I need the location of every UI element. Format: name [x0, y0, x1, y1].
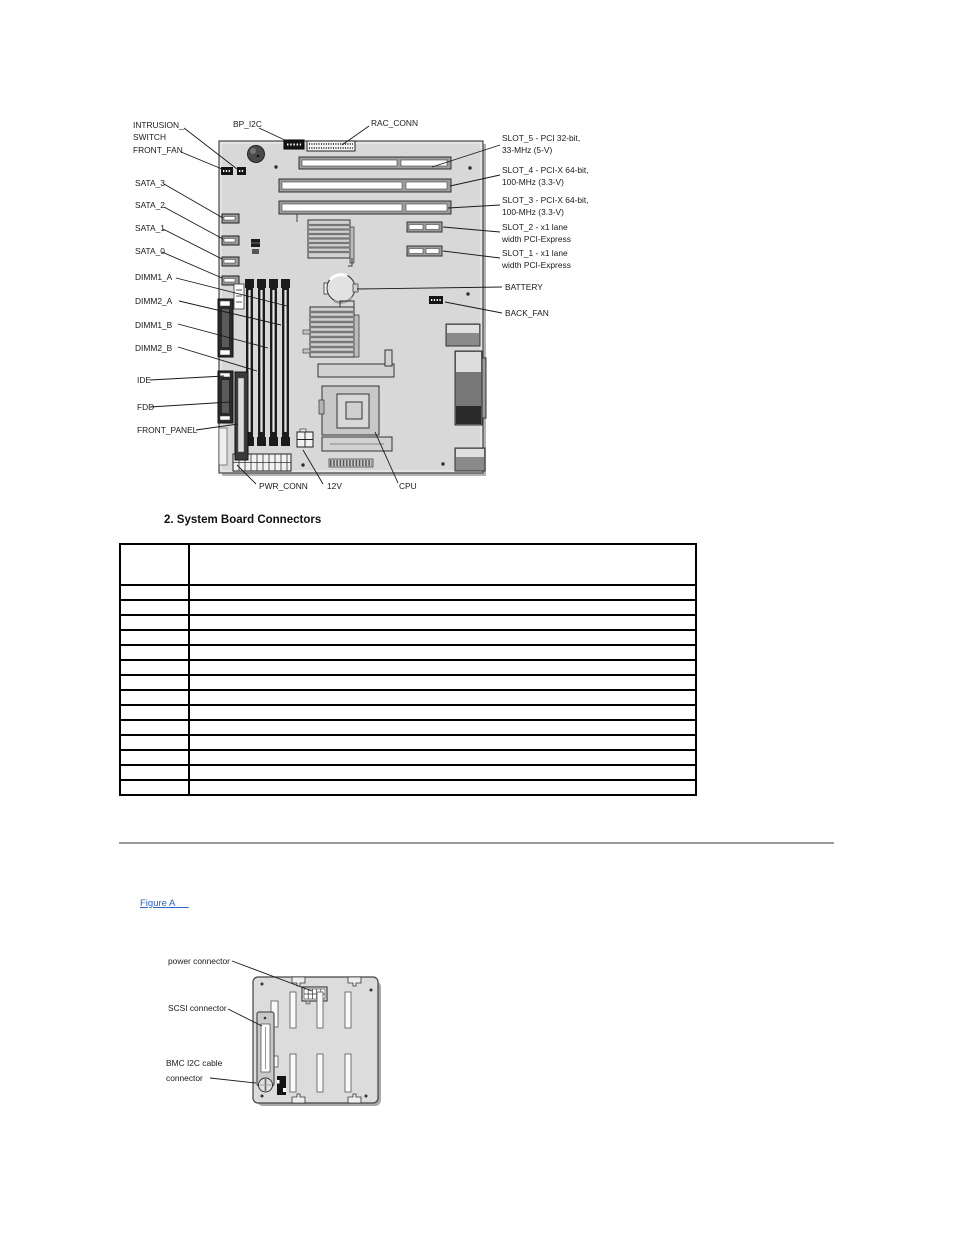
dimm-slot [257, 279, 266, 446]
label-front-panel: FRONT_PANEL [137, 425, 198, 435]
table-cell [189, 585, 696, 600]
table-row [120, 600, 696, 615]
table-row [120, 690, 696, 705]
label-pwr-conn: PWR_CONN [259, 481, 308, 491]
label-rac-conn: RAC_CONN [371, 118, 418, 128]
table-cell [189, 615, 696, 630]
label-bmc-i2c-1: BMC I2C cable [166, 1058, 223, 1068]
table-header-cell-description [189, 544, 696, 585]
label-cpu: CPU [399, 481, 417, 491]
label-battery: BATTERY [505, 282, 543, 292]
aux-connector [234, 284, 244, 309]
table-cell [189, 675, 696, 690]
bottom-header-strip [329, 459, 373, 467]
label-intrusion-switch-1: INTRUSION_ [133, 120, 184, 130]
slot-3-pcix [279, 201, 451, 214]
dimm-slot [281, 279, 290, 446]
table-cell [120, 600, 189, 615]
backplane-labels: power connector SCSI connector BMC I2C c… [166, 956, 230, 1083]
label-dimm1-b: DIMM1_B [135, 320, 173, 330]
label-slot-3-2: 100-MHz (3.3-V) [502, 207, 564, 217]
ide-connector [218, 299, 233, 357]
label-sata-1: SATA_1 [135, 223, 165, 233]
table-cell [189, 630, 696, 645]
table-row [120, 615, 696, 630]
manual-page: INTRUSION_ SWITCH FRONT_FAN SATA_3 SATA_… [0, 0, 954, 1235]
label-front-fan: FRONT_FAN [133, 145, 183, 155]
label-power-connector: power connector [168, 956, 230, 966]
label-slot-4-1: SLOT_4 - PCI-X 64-bit, [502, 165, 589, 175]
table-cell [189, 600, 696, 615]
table-row [120, 630, 696, 645]
table-cell [189, 705, 696, 720]
front-fan-connector [221, 167, 233, 175]
table-cell [120, 645, 189, 660]
table-cell [189, 660, 696, 675]
table-row [120, 765, 696, 780]
sata-2-connector [222, 236, 239, 245]
table-row [120, 675, 696, 690]
table-row [120, 645, 696, 660]
label-slot-2-2: width PCI-Express [501, 234, 571, 244]
figure-a-link[interactable]: Figure A [140, 898, 189, 909]
table-cell [189, 720, 696, 735]
table-cell [189, 780, 696, 795]
small-chip [251, 239, 260, 254]
label-sata-2: SATA_2 [135, 200, 165, 210]
12v-connector [297, 429, 313, 447]
system-board-diagram: INTRUSION_ SWITCH FRONT_FAN SATA_3 SATA_… [118, 108, 648, 500]
table-row [120, 585, 696, 600]
intrusion-switch-connector [237, 167, 246, 175]
label-slot-3-1: SLOT_3 - PCI-X 64-bit, [502, 195, 589, 205]
table-header-row [120, 544, 696, 585]
table-cell [189, 765, 696, 780]
rac-conn-connector [307, 141, 355, 151]
table-row [120, 720, 696, 735]
section-divider [119, 842, 834, 844]
label-slot-2-1: SLOT_2 - x1 lane [502, 222, 568, 232]
dimm-slot [269, 279, 278, 446]
label-dimm2-b: DIMM2_B [135, 343, 173, 353]
table-row [120, 750, 696, 765]
table-cell [120, 630, 189, 645]
system-board-connectors-table [119, 543, 697, 796]
slot-5-pci [299, 157, 451, 169]
back-fan-connector [429, 296, 443, 304]
slot-4-pcix [279, 179, 451, 192]
label-dimm2-a: DIMM2_A [135, 296, 173, 306]
backplane-diagram: power connector SCSI connector BMC I2C c… [148, 946, 448, 1118]
backplane-scsi-connector [257, 1012, 274, 1086]
fdd-connector [218, 371, 233, 423]
table-cell [120, 675, 189, 690]
table-row [120, 735, 696, 750]
label-sata-0: SATA_0 [135, 246, 165, 256]
label-slot-1-2: width PCI-Express [501, 260, 571, 270]
table-cell [120, 705, 189, 720]
connectors-table-body [120, 585, 696, 795]
label-back-fan: BACK_FAN [505, 308, 549, 318]
table-cell [120, 765, 189, 780]
label-scsi-connector: SCSI connector [168, 1003, 227, 1013]
slot-1-pcie [407, 246, 442, 256]
table-cell [120, 750, 189, 765]
label-dimm1-a: DIMM1_A [135, 272, 173, 282]
label-intrusion-switch-2: SWITCH [133, 132, 166, 142]
table-cell [120, 720, 189, 735]
table-cell [189, 750, 696, 765]
chipset-heatsink-lower [303, 301, 359, 357]
label-12v: 12V [327, 481, 342, 491]
table-header-cell-connector [120, 544, 189, 585]
table-cell [120, 585, 189, 600]
figure1-caption: 2. System Board Connectors [164, 514, 321, 526]
label-bmc-i2c-2: connector [166, 1073, 203, 1083]
slot-2-pcie [407, 222, 442, 232]
label-slot-5-1: SLOT_5 - PCI 32-bit, [502, 133, 580, 143]
label-slot-1-1: SLOT_1 - x1 lane [502, 248, 568, 258]
buzzer [248, 146, 265, 163]
table-cell [120, 780, 189, 795]
label-fdd: FDD [137, 402, 154, 412]
table-cell [120, 660, 189, 675]
table-row [120, 660, 696, 675]
label-slot-5-2: 33-MHz (5-V) [502, 145, 552, 155]
sata-1-connector [222, 257, 239, 266]
table-row [120, 780, 696, 795]
label-ide: IDE [137, 375, 151, 385]
table-cell [120, 690, 189, 705]
table-cell [189, 645, 696, 660]
table-cell [120, 615, 189, 630]
table-cell [189, 690, 696, 705]
sata-3-connector [222, 214, 239, 223]
label-sata-3: SATA_3 [135, 178, 165, 188]
table-row [120, 705, 696, 720]
label-bp-i2c: BP_I2C [233, 119, 262, 129]
table-cell [189, 735, 696, 750]
label-slot-4-2: 100-MHz (3.3-V) [502, 177, 564, 187]
table-cell [120, 735, 189, 750]
